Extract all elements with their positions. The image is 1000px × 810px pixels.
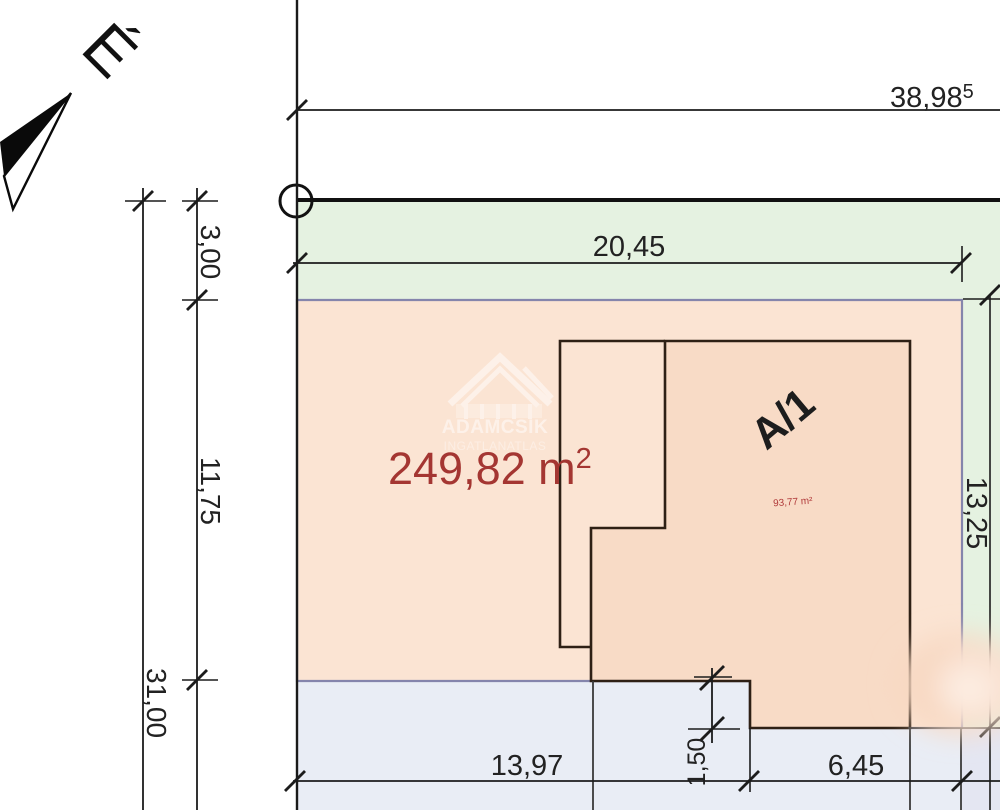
svg-text:3,00: 3,00 xyxy=(195,225,226,280)
svg-text:ADAMCSIK: ADAMCSIK xyxy=(442,417,548,438)
svg-text:20,45: 20,45 xyxy=(593,231,666,263)
svg-text:13,25: 13,25 xyxy=(960,477,992,550)
svg-text:11,75: 11,75 xyxy=(195,457,226,525)
svg-text:INGATLANATLAS: INGATLANATLAS xyxy=(444,439,547,453)
svg-text:38,985: 38,985 xyxy=(890,81,974,114)
svg-text:13,97: 13,97 xyxy=(491,750,564,782)
svg-text:6,45: 6,45 xyxy=(828,750,884,782)
svg-text:31,00: 31,00 xyxy=(141,668,172,738)
svg-text:1,50: 1,50 xyxy=(683,738,711,787)
